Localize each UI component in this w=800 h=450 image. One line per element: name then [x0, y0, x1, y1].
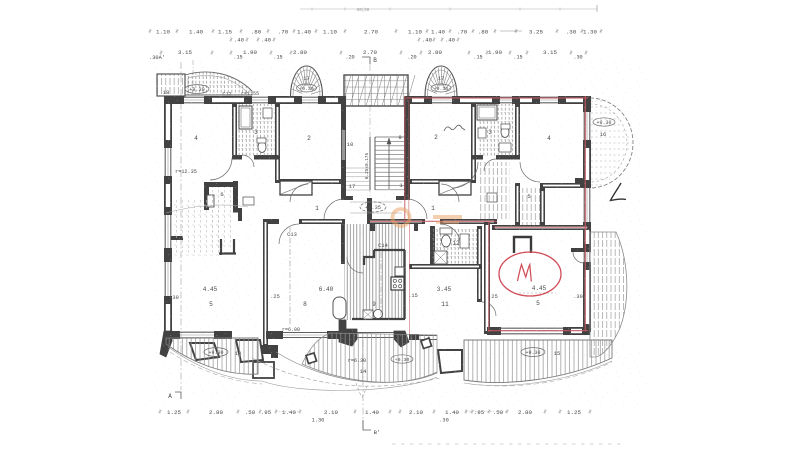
svg-text:.95: .95	[261, 409, 272, 416]
svg-text:1.10: 1.10	[323, 29, 337, 36]
svg-text:2.80: 2.80	[428, 49, 442, 56]
svg-text:60(60: 60(60	[357, 8, 370, 13]
svg-text:.30: .30	[439, 418, 449, 424]
svg-text:2.80: 2.80	[293, 49, 307, 56]
svg-text:.50: .50	[245, 409, 256, 416]
svg-text:1.25: 1.25	[167, 409, 181, 416]
svg-text:1.25: 1.25	[567, 409, 581, 416]
svg-text:.15: .15	[273, 55, 282, 61]
svg-text:.30: .30	[573, 55, 582, 61]
svg-text:.40: .40	[445, 37, 456, 44]
svg-text:1.40: 1.40	[189, 29, 203, 36]
svg-text:1.40: 1.40	[297, 29, 311, 36]
svg-text:2.80: 2.80	[209, 409, 223, 416]
svg-text:.50: .50	[493, 409, 504, 416]
svg-text:1.90: 1.90	[488, 49, 502, 56]
svg-text:.80: .80	[251, 29, 262, 36]
svg-text:.40: .40	[261, 37, 272, 44]
svg-text:1.40: 1.40	[431, 29, 445, 36]
svg-text:.80: .80	[478, 29, 489, 36]
svg-text:3.15: 3.15	[178, 49, 192, 56]
svg-text:.20: .20	[345, 55, 354, 61]
svg-text:.40: .40	[234, 37, 245, 44]
svg-text:2.10: 2.10	[324, 409, 338, 416]
svg-text:2.70: 2.70	[363, 49, 377, 56]
svg-text:.70: .70	[278, 29, 289, 36]
svg-text:1.30: 1.30	[583, 29, 597, 36]
svg-text:B′: B′	[374, 429, 381, 436]
svg-text:1.90: 1.90	[243, 49, 257, 56]
svg-text:.40: .40	[422, 37, 433, 44]
svg-text:2.80: 2.80	[518, 409, 532, 416]
svg-text:1.10: 1.10	[408, 29, 422, 36]
svg-text:1.10: 1.10	[156, 29, 170, 36]
svg-text:1.40: 1.40	[365, 409, 379, 416]
svg-text:.15: .15	[233, 55, 242, 61]
svg-text:3.15: 3.15	[543, 49, 557, 56]
svg-text:3.25: 3.25	[529, 29, 543, 36]
svg-text:.20: .20	[407, 55, 416, 61]
svg-text:.95: .95	[474, 409, 485, 416]
svg-text:.30: .30	[566, 29, 577, 36]
svg-text:.15: .15	[513, 55, 522, 61]
svg-text:1.30: 1.30	[312, 418, 325, 424]
svg-text:1.15: 1.15	[218, 29, 232, 36]
svg-text:1.40: 1.40	[445, 409, 459, 416]
svg-text:2.10: 2.10	[409, 409, 423, 416]
svg-text:1.40: 1.40	[282, 409, 296, 416]
svg-text:.15: .15	[473, 55, 482, 61]
svg-text:2.70: 2.70	[364, 29, 378, 36]
svg-text:.70: .70	[457, 29, 468, 36]
